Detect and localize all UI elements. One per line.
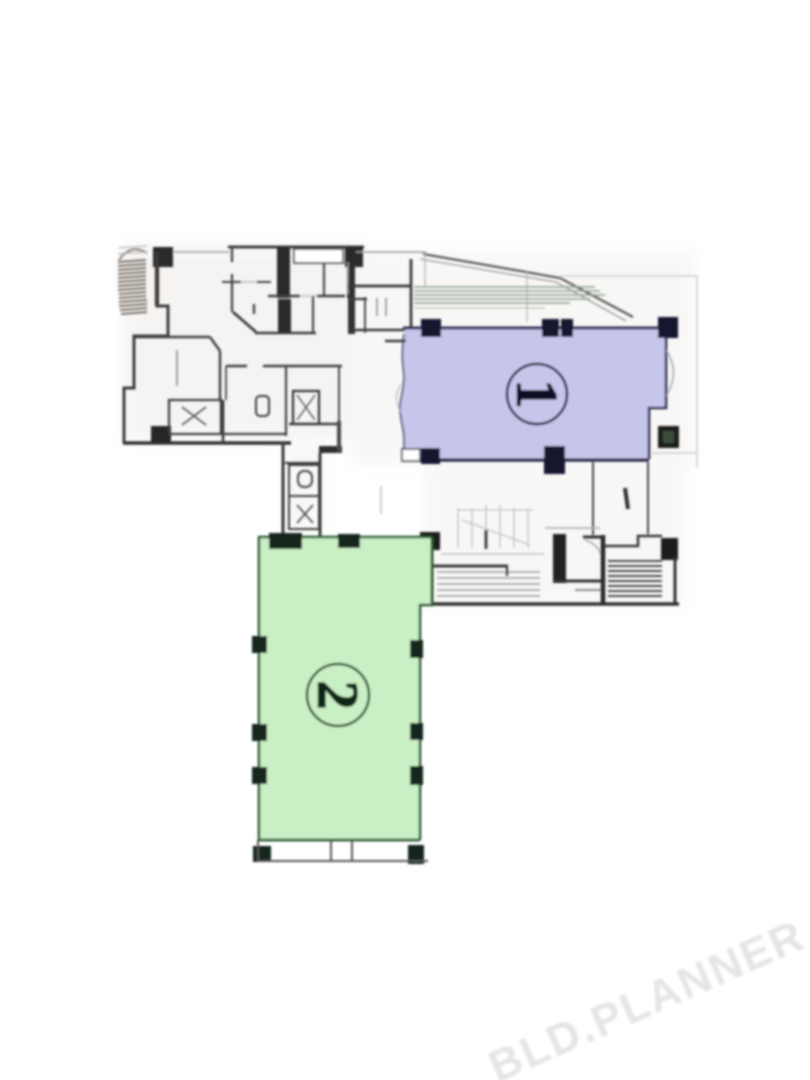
svg-text:2: 2 — [306, 681, 371, 710]
svg-text:1: 1 — [505, 380, 570, 409]
